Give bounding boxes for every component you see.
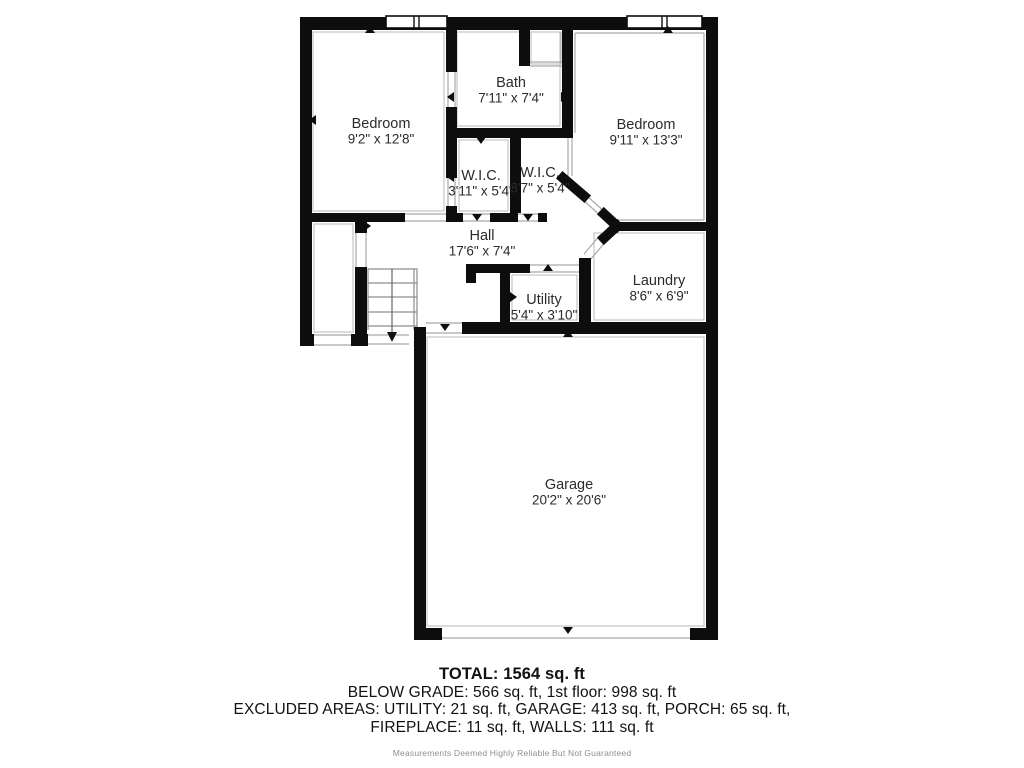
wall (519, 30, 530, 66)
room-label: Bedroom (617, 117, 676, 133)
room-label: W.I.C. (520, 165, 559, 181)
measure-tick-icon (523, 214, 533, 221)
summary-total: TOTAL: 1564 sq. ft (0, 666, 1024, 684)
room-label: Laundry (633, 273, 686, 289)
measure-tick-icon (472, 214, 482, 221)
wall (490, 213, 518, 222)
floorplan-svg: Bedroom9'2" x 12'8"Bath7'11" x 7'4"Bedro… (0, 0, 1024, 768)
room-label: Garage (545, 477, 593, 493)
wall (706, 17, 718, 640)
wall (690, 628, 718, 640)
room-dimensions: 3'7" x 5'4" (510, 181, 569, 196)
summary-below-grade: BELOW GRADE: 566 sq. ft, 1st floor: 998 … (0, 684, 1024, 702)
room-label: W.I.C. (461, 168, 500, 184)
room-inset-outline (314, 224, 353, 332)
stairs-down-arrow-icon (387, 332, 397, 342)
wall (300, 334, 314, 346)
disclaimer: Measurements Deemed Highly Reliable But … (0, 745, 1024, 763)
wall (538, 213, 547, 222)
summary-excluded-areas-2: FIREPLACE: 11 sq. ft, WALLS: 111 sq. ft (0, 719, 1024, 737)
summary-excluded-areas: EXCLUDED AREAS: UTILITY: 21 sq. ft, GARA… (0, 701, 1024, 719)
wall (446, 30, 457, 72)
room-label: Hall (470, 228, 495, 244)
room-dimensions: 7'11" x 7'4" (478, 91, 544, 106)
wall (500, 264, 510, 322)
room-dimensions: 3'11" x 5'4" (448, 184, 514, 199)
room-dimensions: 5'4" x 3'10" (511, 308, 578, 323)
measure-tick-icon (364, 221, 371, 231)
room-dimensions: 8'6" x 6'9" (629, 289, 688, 304)
wall (614, 222, 706, 231)
room-inset-outline (531, 32, 561, 64)
wall (562, 30, 573, 128)
wall (579, 258, 591, 322)
wall (466, 264, 476, 283)
room-label: Bath (496, 75, 526, 91)
window (386, 16, 447, 28)
wall (300, 213, 405, 222)
room-label: Utility (526, 292, 562, 308)
measure-tick-icon (510, 292, 517, 302)
measure-tick-icon (563, 627, 573, 634)
room-dimensions: 17'6" x 7'4" (449, 244, 516, 259)
diagonal-wall (604, 226, 617, 238)
measure-tick-icon (440, 324, 450, 331)
floorplan-page: Bedroom9'2" x 12'8"Bath7'11" x 7'4"Bedro… (0, 0, 1024, 768)
area-summary: TOTAL: 1564 sq. ft BELOW GRADE: 566 sq. … (0, 666, 1024, 763)
wall (446, 107, 457, 178)
room-dimensions: 9'11" x 13'3" (609, 133, 682, 148)
wall (355, 267, 367, 346)
window (627, 16, 702, 28)
wall (446, 128, 573, 138)
wall (414, 628, 442, 640)
wall (300, 17, 312, 346)
room-dimensions: 9'2" x 12'8" (348, 132, 415, 147)
room-dimensions: 20'2" x 20'6" (532, 493, 606, 508)
wall (446, 213, 463, 222)
room-label: Bedroom (352, 116, 411, 132)
